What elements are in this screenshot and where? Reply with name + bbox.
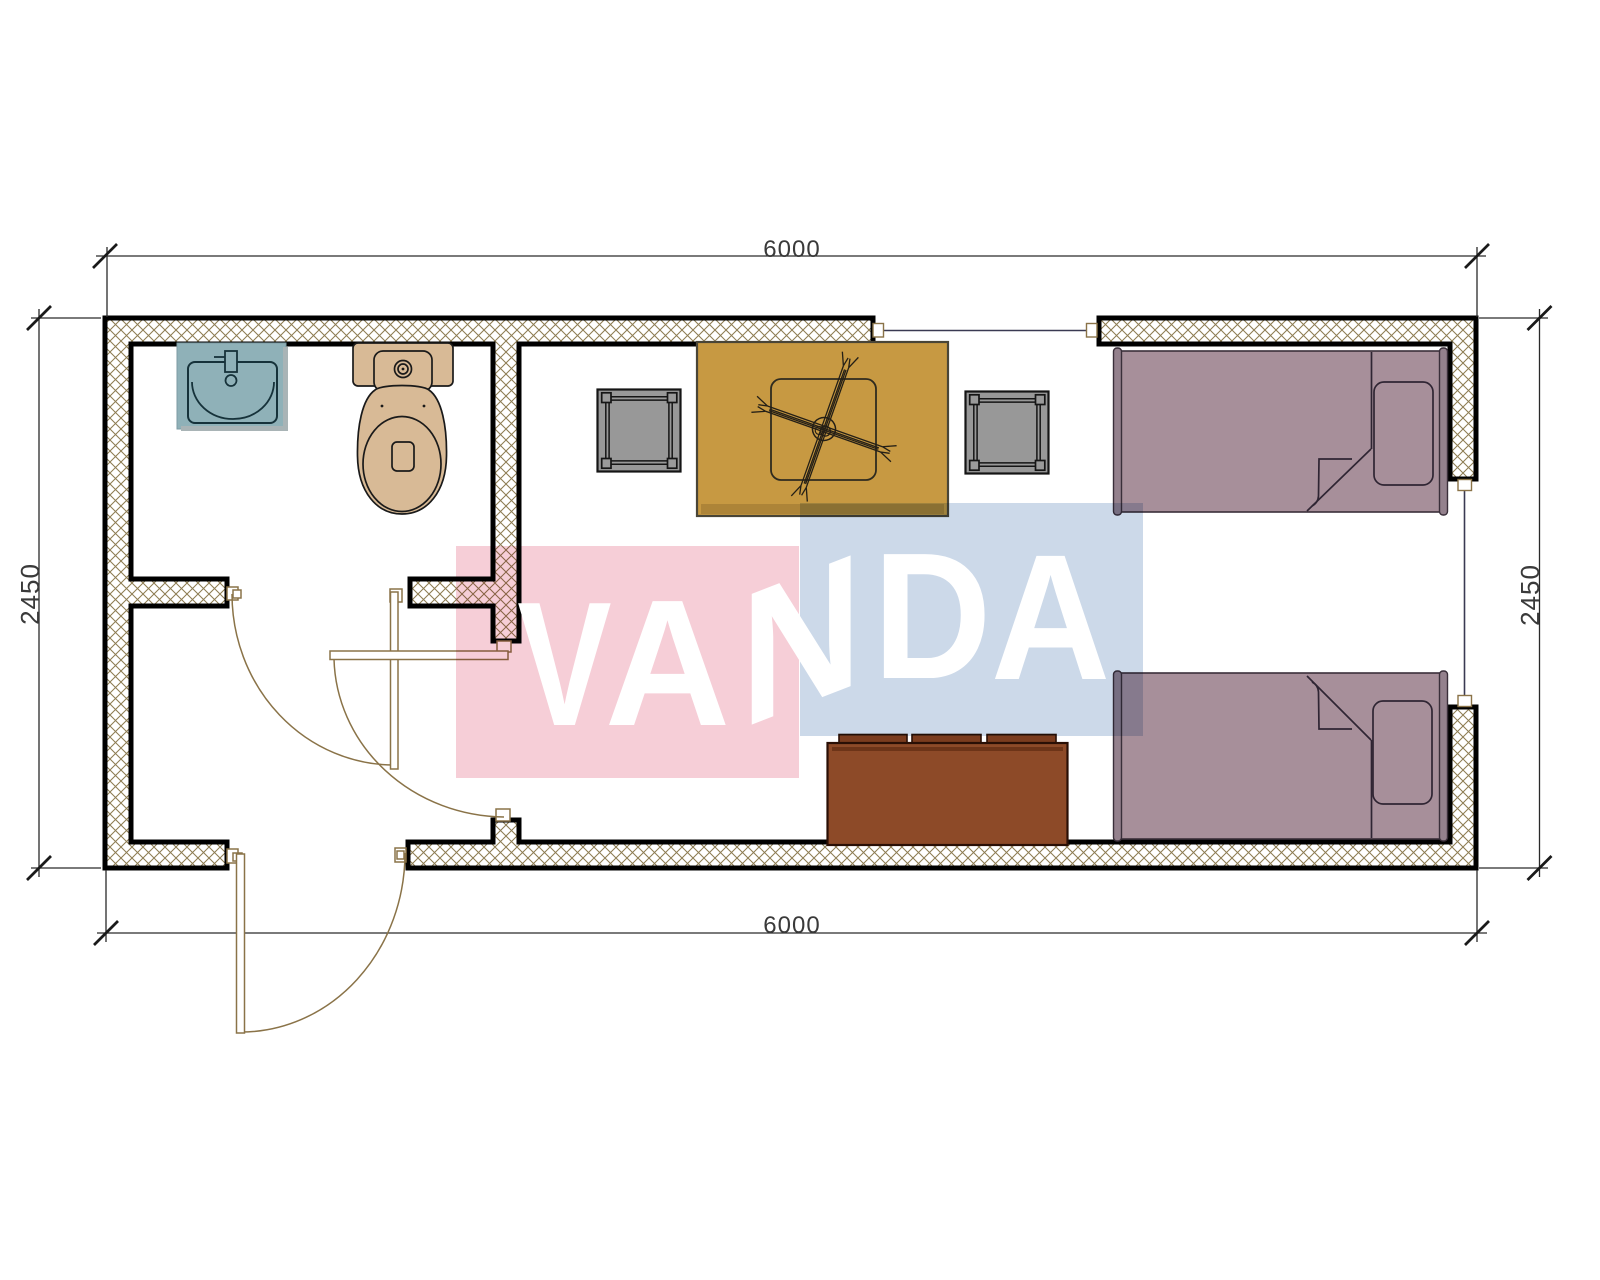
svg-text:6000: 6000	[763, 912, 820, 939]
svg-text:2450: 2450	[1515, 564, 1545, 626]
svg-text:2450: 2450	[15, 563, 45, 625]
svg-text:A: A	[991, 517, 1111, 717]
svg-text:A: A	[605, 562, 731, 763]
svg-text:V: V	[517, 565, 611, 763]
svg-text:D: D	[873, 515, 992, 717]
svg-text:6000: 6000	[763, 236, 820, 263]
